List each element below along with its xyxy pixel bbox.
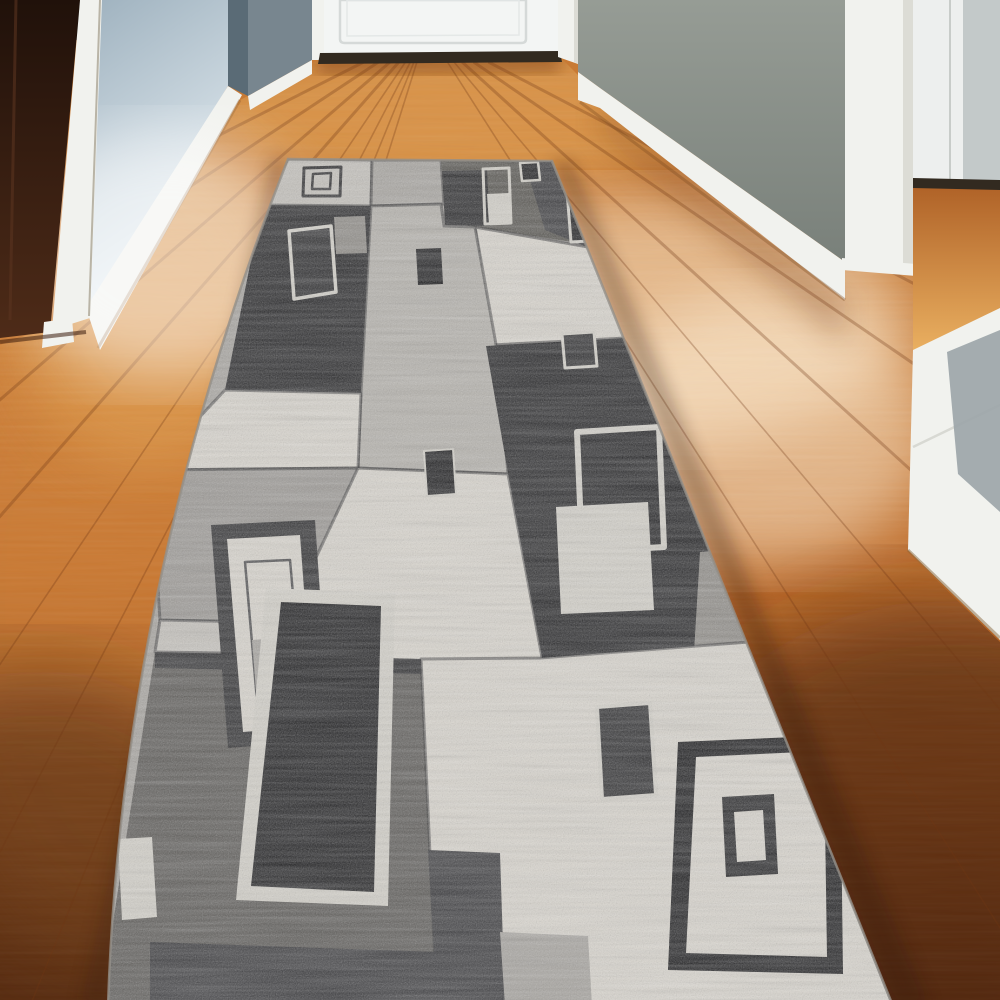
- opening-door: [913, 0, 963, 180]
- right-doorway-pillar: [845, 0, 913, 268]
- opening-door-shade: [963, 0, 1000, 182]
- far-door: [324, 0, 558, 59]
- far-door-casing-shade: [574, 0, 578, 64]
- hallway-scene: [0, 0, 1000, 1000]
- hallway-photo: [0, 0, 1000, 1000]
- far-door-gap: [318, 51, 562, 64]
- far-door-left-casing: [312, 0, 324, 60]
- pillar-edge-shade: [903, 0, 913, 268]
- end-wall-corner: [228, 0, 248, 96]
